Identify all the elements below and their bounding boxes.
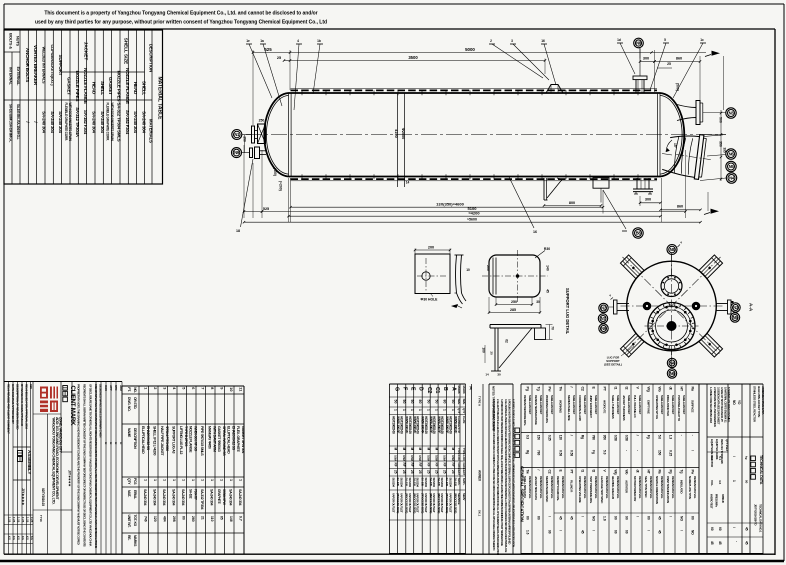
svg-text:C2: C2 xyxy=(426,387,432,393)
svg-text:ASSEMBLY DWG DATA: ASSEMBLY DWG DATA xyxy=(761,386,765,415)
svg-text:HALF PIPE JACKET: HALF PIPE JACKET xyxy=(160,426,164,456)
svg-text:USE OR IMPLOYING THE CONTENTS: USE OR IMPLOYING THE CONTENTS OF DISCLOS… xyxy=(94,384,98,548)
svg-text:1: 1 xyxy=(427,409,431,411)
svg-text:1:25: 1:25 xyxy=(30,517,34,523)
svg-text:ELLIPTICAL HEAD: ELLIPTICAL HEAD xyxy=(227,426,231,454)
svg-text:WN50-300 RF: WN50-300 RF xyxy=(396,416,400,433)
svg-text:50: 50 xyxy=(394,400,398,404)
svg-text:WORKING: WORKING xyxy=(558,400,562,414)
svg-text:KG: KG xyxy=(12,536,16,540)
svg-text:ZONE, YANGZHOU CITY: ZONE, YANGZHOU CITY xyxy=(59,417,63,454)
svg-text:SA-105: SA-105 xyxy=(445,478,449,487)
svg-text:t1: t1 xyxy=(613,387,617,390)
svg-text:SA-240 304: SA-240 304 xyxy=(172,489,176,505)
svg-text:m3: m3 xyxy=(710,456,714,461)
svg-text:120: 120 xyxy=(153,516,157,522)
svg-text:HG/T20615-09: HG/T20615-09 xyxy=(391,416,395,434)
svg-text:4. NDE: RT SPOT PER UW-52, PT: 4. NDE: RT SPOT PER UW-52, PT xyxy=(720,387,724,422)
svg-text:950: 950 xyxy=(602,435,606,440)
svg-text:2. PED/ASME SPEC AND DRAWINGS: 2. PED/ASME SPEC AND DRAWINGS xyxy=(713,387,717,427)
svg-text:FLANGE STD: FLANGE STD xyxy=(457,416,461,434)
svg-text:60: 60 xyxy=(536,516,540,520)
svg-text:SA-193 B8M L/SA-194 8M G-L: SA-193 B8M L/SA-194 8M G-L xyxy=(8,104,12,142)
svg-text:NOZZLE FLANGE: NOZZLE FLANGE xyxy=(125,68,130,104)
svg-text:VORTEX BREAKER: VORTEX BREAKER xyxy=(33,45,38,86)
svg-text:≈5600: ≈5600 xyxy=(467,218,477,222)
svg-text:HYDRO TEST: HYDRO TEST xyxy=(710,494,714,509)
svg-text:OR STD.: OR STD. xyxy=(133,397,137,409)
svg-text:30: 30 xyxy=(497,373,501,377)
svg-text:250: 250 xyxy=(259,118,265,122)
svg-text:150: 150 xyxy=(657,450,661,456)
svg-text:1a: 1a xyxy=(260,39,264,43)
svg-text:(PROCESS SIDE): (PROCESS SIDE) xyxy=(453,493,457,513)
svg-text:EMPTY WE: EMPTY WE xyxy=(646,400,650,414)
svg-text:1: 1 xyxy=(144,479,148,481)
svg-text:0.5M: 0.5M xyxy=(410,455,414,462)
svg-text:0.5M: 0.5M xyxy=(402,455,406,462)
svg-text:0.25: 0.25 xyxy=(668,450,672,456)
svg-text:SHELL/JACKET: SHELL/JACKET xyxy=(550,395,554,415)
svg-text:1:25: 1:25 xyxy=(21,517,25,523)
svg-text:INSULATIO: INSULATIO xyxy=(679,480,683,494)
svg-text:DESCRIPTION: DESCRIPTION xyxy=(149,44,154,72)
svg-text:1:25: 1:25 xyxy=(12,517,16,523)
svg-text:VAPOR OUTLET: VAPOR OUTLET xyxy=(408,493,412,513)
svg-text:VAPOR OUTLET: VAPOR OUTLET xyxy=(449,493,453,513)
svg-text:This document is a property of: This document is a property of Yangzhou … xyxy=(44,11,317,17)
svg-text:1. THIS EQUIPMENT IS DESIGNED: 1. THIS EQUIPMENT IS DESIGNED AND FABRIC… xyxy=(492,399,496,550)
svg-text:WITH SS304 INSERTS SPWN: WITH SS304 INSERTS SPWN xyxy=(110,103,114,142)
svg-text:TOT. KG: TOT. KG xyxy=(133,515,137,527)
svg-text:WITH DAVIT ARM: WITH DAVIT ARM xyxy=(213,426,217,452)
svg-text:VAPOR OUTLET: VAPOR OUTLET xyxy=(416,493,420,513)
svg-text:/: / xyxy=(646,530,650,531)
svg-text:CLIENT MARK: CLIENT MARK xyxy=(69,386,76,427)
svg-text:SA-105: SA-105 xyxy=(453,478,457,487)
svg-text:GASKET: GASKET xyxy=(108,77,113,95)
svg-text:395: 395 xyxy=(723,147,727,153)
svg-text:SHELL δ=12 L=4200: SHELL δ=12 L=4200 xyxy=(153,426,157,455)
svg-text:DESIGN DATA VAL: DESIGN DATA VAL xyxy=(693,476,697,499)
svg-text:(PROCESS SIDE): (PROCESS SIDE) xyxy=(420,493,424,513)
svg-text:3500: 3500 xyxy=(408,55,418,60)
svg-text:t2: t2 xyxy=(591,470,595,473)
svg-text:YD: YD xyxy=(737,400,741,405)
svg-text:DESIGN DATA VAL: DESIGN DATA VAL xyxy=(539,476,543,499)
svg-text:HG/T20615-09: HG/T20615-09 xyxy=(440,416,444,434)
svg-text:PAINT SPECIFICATION: PAINT SPECIFICATION xyxy=(666,476,670,503)
svg-text:SHELL/JACKET: SHELL/JACKET xyxy=(539,395,543,415)
svg-text:C1: C1 xyxy=(434,387,440,393)
svg-text:25: 25 xyxy=(427,470,431,474)
svg-text:/: / xyxy=(690,450,694,451)
svg-text:ELLIPTICAL HEAD: ELLIPTICAL HEAD xyxy=(141,426,145,454)
svg-text:EQUIP NAME REACTOR: EQUIP NAME REACTOR xyxy=(710,439,714,468)
svg-text:(PROCESS SIDE): (PROCESS SIDE) xyxy=(445,493,449,513)
svg-text:FULL VOLUME m3: FULL VOLUME m3 xyxy=(633,395,637,418)
svg-text:DESIGN PRESSURE MPa: DESIGN PRESSURE MPa xyxy=(523,395,527,426)
svg-text:TEST PRESSURE MPa: TEST PRESSURE MPa xyxy=(589,476,593,504)
svg-text:150: 150 xyxy=(536,435,540,440)
svg-text:SA-182 F304: SA-182 F304 xyxy=(125,110,130,135)
svg-text:VAPOR OUTLET: VAPOR OUTLET xyxy=(424,493,428,513)
svg-text:-: - xyxy=(735,541,739,542)
svg-text:NOZZLE PIPES: NOZZLE PIPES xyxy=(116,71,121,102)
svg-text:used by any third parties for: used by any third parties for any purpos… xyxy=(35,20,327,26)
svg-text:285: 285 xyxy=(510,308,516,312)
svg-text:YANGZHOU TONGYANG CHEMICAL EQU: YANGZHOU TONGYANG CHEMICAL EQUIPMENT CO.… xyxy=(52,417,56,504)
svg-text:/: / xyxy=(558,530,562,531)
svg-text:Pg: Pg xyxy=(668,470,672,474)
svg-text:1: 1 xyxy=(239,479,243,481)
svg-text:FLEX. GRAPHITE: FLEX. GRAPHITE xyxy=(236,426,240,452)
svg-text:45: 45 xyxy=(745,527,749,531)
svg-text:TYPE A: TYPE A xyxy=(478,396,482,406)
svg-text:QTY 1 SET: QTY 1 SET xyxy=(725,439,729,452)
svg-text:TYPE: TYPE xyxy=(462,448,466,455)
svg-text:(≈200): (≈200) xyxy=(279,181,283,191)
svg-text:Rg: Rg xyxy=(525,450,529,454)
svg-text:JACKET: JACKET xyxy=(83,42,88,61)
svg-text:1: 1 xyxy=(153,479,157,481)
svg-text:SA-105: SA-105 xyxy=(396,478,400,487)
svg-text:1: 1 xyxy=(732,480,736,482)
svg-text:300: 300 xyxy=(645,197,651,201)
svg-text:REV: REV xyxy=(29,384,33,389)
svg-text:J/Y∗∗∗∗: J/Y∗∗∗∗ xyxy=(68,470,72,487)
svg-text:SA-240 304: SA-240 304 xyxy=(41,111,46,133)
svg-text:110: 110 xyxy=(210,516,214,522)
svg-text:NO: NO xyxy=(679,516,683,521)
svg-text:SA-240 304: SA-240 304 xyxy=(181,489,185,505)
svg-text:JACKET THICKNESS: JACKET THICKNESS xyxy=(622,395,626,421)
svg-text:25: 25 xyxy=(435,470,439,474)
svg-text:860: 860 xyxy=(676,57,682,61)
svg-text:DESIGN DATA VAL: DESIGN DATA VAL xyxy=(594,476,598,499)
svg-text:1: 1 xyxy=(182,479,186,481)
svg-text:3. HYDROSTATIC TEST PRESSURE 0: 3. HYDROSTATIC TEST PRESSURE 0.58 MPA FO… xyxy=(500,399,504,546)
svg-text:62: 62 xyxy=(505,339,509,343)
svg-text:REV.5 ISSUED FOR APPROVAL 2016: REV.5 ISSUED FOR APPROVAL 2016 xyxy=(25,384,29,429)
svg-text:25: 25 xyxy=(277,56,281,60)
svg-text:ERIAL: ERIAL xyxy=(133,490,137,499)
svg-text:FLAN: FLAN xyxy=(462,416,466,423)
svg-text:60: 60 xyxy=(690,516,694,520)
svg-text:kg: kg xyxy=(745,456,749,460)
svg-text:ADD: 103 JINGANG ROAD, ECONOMI: ADD: 103 JINGANG ROAD, ECONOMIC DEVELOPM… xyxy=(55,417,59,500)
svg-text:G: G xyxy=(393,387,399,391)
svg-text:SA-240 304: SA-240 304 xyxy=(143,489,147,505)
svg-text:INSULATION THK: INSULATION THK xyxy=(666,395,670,417)
svg-text:NAME: NAME xyxy=(127,428,131,438)
svg-text:SA-240 304: SA-240 304 xyxy=(58,111,63,133)
svg-text:140: 140 xyxy=(546,265,550,271)
svg-text:MOTOR POWER KW: MOTOR POWER KW xyxy=(633,476,637,501)
svg-text:OPERATING VOLUME: OPERATING VOLUME xyxy=(578,476,582,503)
svg-text:PCS: PCS xyxy=(133,478,137,485)
svg-text:30: 30 xyxy=(536,300,540,304)
svg-text:B: B xyxy=(442,387,448,391)
svg-text:OF DISCLOSURE SAME TO OTHERS,: OF DISCLOSURE SAME TO OTHERS, ALL RIGHTS… xyxy=(88,384,92,547)
svg-text:1: 1 xyxy=(418,409,422,411)
svg-text:WN50-300 RF: WN50-300 RF xyxy=(445,416,449,433)
svg-text:(PROCESS SIDE): (PROCESS SIDE) xyxy=(396,493,400,513)
svg-text:500: 500 xyxy=(718,117,722,123)
svg-text:SIZE: SIZE xyxy=(457,399,461,405)
svg-text:0.5M: 0.5M xyxy=(427,455,431,462)
svg-text:5.1: 5.1 xyxy=(718,456,722,461)
svg-text:GRAPHITE: GRAPHITE xyxy=(217,489,221,504)
svg-text:60: 60 xyxy=(182,516,186,520)
svg-text:SA-312 TP304 SMLS: SA-312 TP304 SMLS xyxy=(116,102,121,141)
svg-text:SHELL/JACKET: SHELL/JACKET xyxy=(572,395,576,415)
svg-text:DESIGN DATA VAL: DESIGN DATA VAL xyxy=(605,476,609,499)
svg-text:SHELL: SHELL xyxy=(100,81,105,95)
svg-text:INTERNAL: INTERNAL xyxy=(8,67,12,85)
svg-text:9.7: 9.7 xyxy=(239,516,243,521)
svg-text:5: 5 xyxy=(664,38,666,42)
svg-text:R30: R30 xyxy=(544,247,550,251)
svg-text:RF: RF xyxy=(410,463,414,467)
svg-text:t1: t1 xyxy=(580,470,584,473)
svg-text:SUPPORT: SUPPORT xyxy=(58,55,63,76)
svg-text:Fg: Fg xyxy=(591,450,595,454)
svg-text:Tg: Tg xyxy=(679,470,683,474)
svg-text:7: 7 xyxy=(201,387,205,389)
svg-text:SHELL/JACKET: SHELL/JACKET xyxy=(616,395,620,415)
svg-text:4.6: 4.6 xyxy=(718,480,722,485)
svg-text:65: 65 xyxy=(220,516,224,520)
svg-text:SA-312 TP304: SA-312 TP304 xyxy=(200,489,204,509)
svg-text:5.0: 5.0 xyxy=(657,435,661,439)
svg-text:TYPE B 2PCS: TYPE B 2PCS xyxy=(184,426,188,447)
svg-text:25: 25 xyxy=(667,62,671,66)
svg-text:DESIGN DATA VAL: DESIGN DATA VAL xyxy=(583,476,587,499)
svg-text:KG: KG xyxy=(17,536,21,540)
svg-text:(M): (M) xyxy=(469,386,473,390)
svg-text:Pw: Pw xyxy=(690,470,694,475)
svg-text:WN50-300 RF: WN50-300 RF xyxy=(453,416,457,433)
svg-text:1.6: 1.6 xyxy=(525,530,529,535)
svg-text:Φ76X4 PITCH350: Φ76X4 PITCH350 xyxy=(165,426,169,451)
svg-text:SK.1: SK.1 xyxy=(478,510,482,517)
svg-text:0.58: 0.58 xyxy=(613,435,617,441)
svg-text:SURFACE: SURFACE xyxy=(690,400,694,413)
svg-text:5. MATERIAL CERTS EN10204 3.1: 5. MATERIAL CERTS EN10204 3.1 xyxy=(723,387,727,423)
svg-text:20: 20 xyxy=(490,351,494,355)
svg-text:1: 1 xyxy=(402,409,406,411)
svg-text:HEATING AREA M2: HEATING AREA M2 xyxy=(611,476,615,500)
svg-text:50: 50 xyxy=(410,400,414,404)
svg-text:SHELL/JACKET: SHELL/JACKET xyxy=(528,395,532,415)
svg-text:DESCRIPTION OF REVISION ISSUED: DESCRIPTION OF REVISION ISSUED xyxy=(16,384,20,430)
svg-text:TY16: TY16 xyxy=(39,515,43,522)
svg-text:1: 1 xyxy=(163,479,167,481)
svg-text:Tw: Tw xyxy=(558,387,562,392)
svg-text:90: 90 xyxy=(624,516,628,520)
svg-text:746: 746 xyxy=(144,516,148,522)
svg-text:3: 3 xyxy=(511,39,513,43)
svg-text:QTY: QTY xyxy=(462,408,466,414)
svg-text:Fg: Fg xyxy=(646,435,650,439)
svg-text:M: M xyxy=(442,448,446,451)
svg-text:14: 14 xyxy=(485,373,489,377)
svg-text:120: 120 xyxy=(558,435,562,440)
svg-text:NO: NO xyxy=(690,530,694,535)
svg-text:9: 9 xyxy=(220,387,224,389)
svg-text:50: 50 xyxy=(427,400,431,404)
svg-text:SA-193 B8 L/SA-194 8H G-L: SA-193 B8 L/SA-194 8H G-L xyxy=(16,104,20,140)
svg-text:MATERIAL TABLE: MATERIAL TABLE xyxy=(157,76,163,120)
svg-text:25: 25 xyxy=(402,470,406,474)
svg-text:/: / xyxy=(580,516,584,517)
svg-text:SERVICE: SERVICE xyxy=(457,493,461,505)
svg-text:50: 50 xyxy=(435,400,439,404)
svg-text:F: F xyxy=(402,387,408,390)
svg-text:780: 780 xyxy=(536,450,540,456)
svg-text:VAPOR OUTLET: VAPOR OUTLET xyxy=(432,493,436,513)
svg-text:WN50-300 RF: WN50-300 RF xyxy=(420,416,424,433)
svg-text:Tw: Tw xyxy=(525,470,529,475)
svg-text:45: 45 xyxy=(718,541,722,545)
svg-text:SIZE: SIZE xyxy=(462,399,466,405)
svg-text:4: 4 xyxy=(297,39,299,43)
svg-text:1e: 1e xyxy=(246,39,250,43)
svg-text:VOL: VOL xyxy=(710,480,714,486)
svg-text:FLEXIBLE GRAPHITE CORR.: FLEXIBLE GRAPHITE CORR. xyxy=(64,103,68,142)
svg-text:60: 60 xyxy=(624,530,628,534)
svg-text:-: - xyxy=(635,450,639,451)
svg-text:(SEE DETAIL): (SEE DETAIL) xyxy=(604,363,622,367)
svg-text:-: - xyxy=(624,450,628,451)
svg-text:45: 45 xyxy=(569,516,573,520)
svg-text:2. ALL BUTT WELDS SHALL BE FUL: 2. ALL BUTT WELDS SHALL BE FULL PENETRAT… xyxy=(496,399,500,555)
svg-text:SA-240 304: SA-240 304 xyxy=(133,111,138,133)
svg-text:5000: 5000 xyxy=(465,47,475,52)
svg-text:DESIGN DATA VAL: DESIGN DATA VAL xyxy=(660,476,664,499)
svg-text:6. NAMEPLATE FIXED ON SHELL: 6. NAMEPLATE FIXED ON SHELL xyxy=(727,387,731,423)
svg-text:NAMEPLATE TYPE: NAMEPLATE TYPE xyxy=(688,476,692,499)
svg-text:11: 11 xyxy=(239,387,243,391)
svg-text:PIPE Φ57X3.5 SMLS: PIPE Φ57X3.5 SMLS xyxy=(200,426,204,456)
svg-text:EXTERNAL: EXTERNAL xyxy=(16,67,20,87)
svg-text:LIFTING LUG PL.12: LIFTING LUG PL.12 xyxy=(179,426,183,454)
svg-text:FACE: FACE xyxy=(457,463,461,470)
svg-text:EXT: EXT xyxy=(457,470,461,476)
svg-text:60: 60 xyxy=(718,527,722,531)
svg-text:KG: KG xyxy=(8,536,12,540)
svg-text:SA-182: SA-182 xyxy=(189,489,193,499)
svg-text:NOZZLE FLANGE: NOZZLE FLANGE xyxy=(83,68,88,104)
svg-text:25: 25 xyxy=(442,470,446,474)
svg-text:NO: NO xyxy=(732,400,736,405)
svg-text:RF: RF xyxy=(451,463,455,467)
svg-text:HEAD: HEAD xyxy=(91,82,96,95)
svg-text:Φ2000: Φ2000 xyxy=(401,128,405,140)
svg-text:FACE: FACE xyxy=(462,463,466,470)
svg-text:MEDIUM NAME SPEC: MEDIUM NAME SPEC xyxy=(545,476,549,503)
svg-text:OPERATING WT KG: OPERATING WT KG xyxy=(655,395,659,420)
svg-text:PROPRIETARY NOTE: THIS DRAWING: PROPRIETARY NOTE: THIS DRAWING AND THE D… xyxy=(77,384,81,545)
svg-text:SHELL THICKNESS: SHELL THICKNESS xyxy=(611,395,615,419)
svg-text:FILLING R: FILLING R xyxy=(569,480,573,493)
svg-text:HYDRO TE: HYDRO TE xyxy=(602,400,606,413)
svg-text:UNIT WT.: UNIT WT. xyxy=(127,515,131,529)
svg-text:NOZZLE ORIENTATION: NOZZLE ORIENTATION xyxy=(655,476,659,504)
svg-text:SHELL SIDE DATA: SHELL SIDE DATA xyxy=(523,476,527,499)
svg-text:ANCHOR BOLTS: ANCHOR BOLTS xyxy=(25,48,30,82)
svg-text:2: 2 xyxy=(153,387,157,389)
svg-text:0.58: 0.58 xyxy=(558,450,562,456)
svg-text:M: M xyxy=(394,448,398,451)
svg-text:HEAD: HEAD xyxy=(133,82,138,95)
svg-text:DESIGN DATA VAL: DESIGN DATA VAL xyxy=(638,476,642,499)
svg-text:1:25: 1:25 xyxy=(17,517,21,523)
svg-text:2: 2 xyxy=(490,39,492,43)
svg-text:1. ASME CODE SEC.VIII DIV.1 20: 1. ASME CODE SEC.VIII DIV.1 2013 xyxy=(709,387,713,423)
svg-text:HG/T20615-09: HG/T20615-09 xyxy=(400,416,404,434)
svg-text:VAPOR OUTLET: VAPOR OUTLET xyxy=(391,493,395,513)
svg-text:APP: APP xyxy=(109,385,113,391)
svg-text:C2: C2 xyxy=(547,470,551,474)
svg-text:1:25: 1:25 xyxy=(8,517,12,523)
svg-text:F304 RF: F304 RF xyxy=(194,489,198,500)
svg-text:EXT: EXT xyxy=(462,470,466,476)
svg-text:8: 8 xyxy=(210,387,214,389)
svg-text:HALF-PIPE JACKET TYPE: HALF-PIPE JACKET TYPE xyxy=(757,386,761,417)
svg-text:/: / xyxy=(668,516,672,517)
svg-text:1: 1 xyxy=(435,409,439,411)
svg-text:6. VESSEL TO BE CLEANED AND DR: 6. VESSEL TO BE CLEANED AND DRIED BEFORE… xyxy=(512,399,516,547)
svg-text:NOZZLE FLANGE: NOZZLE FLANGE xyxy=(189,426,193,453)
svg-text:AGITATOR: AGITATOR xyxy=(624,480,628,494)
svg-text:Ra: Ra xyxy=(657,470,661,474)
svg-text:SUPPORT LUG DETAIL: SUPPORT LUG DETAIL xyxy=(565,288,570,335)
svg-text:60: 60 xyxy=(525,516,529,520)
svg-text:15°: 15° xyxy=(673,143,677,149)
svg-text:HG/T20615-09: HG/T20615-09 xyxy=(416,416,420,434)
svg-text:200: 200 xyxy=(428,245,434,249)
svg-text:A-A: A-A xyxy=(749,303,754,312)
svg-text:0.58: 0.58 xyxy=(624,435,628,441)
svg-text:0.3: 0.3 xyxy=(525,435,529,439)
svg-text:1.3: 1.3 xyxy=(668,435,672,439)
svg-text:t2: t2 xyxy=(624,387,628,390)
svg-text:45: 45 xyxy=(657,530,661,534)
svg-text:Φ30 HOLE: Φ30 HOLE xyxy=(421,298,439,302)
svg-text:EHA2000X12 SS: EHA2000X12 SS xyxy=(232,426,236,451)
svg-text:SUS304: SUS304 xyxy=(391,478,395,488)
svg-text:SA-240 304: SA-240 304 xyxy=(50,111,55,133)
svg-text:MARKS: MARKS xyxy=(133,535,137,547)
svg-text:60: 60 xyxy=(710,527,714,531)
svg-text:GASKET: GASKET xyxy=(66,77,71,95)
svg-text:ASSEMBLY: ASSEMBLY xyxy=(27,450,32,474)
svg-text:SUS304: SUS304 xyxy=(440,478,444,488)
svg-text:CLIPS/BRACKETS(EXT.): CLIPS/BRACKETS(EXT.) xyxy=(50,45,54,87)
svg-text:Wo: Wo xyxy=(624,470,628,475)
svg-text:NO: NO xyxy=(591,516,595,521)
svg-text:25: 25 xyxy=(418,470,422,474)
svg-text:JS/TY2016-028-TD: JS/TY2016-028-TD xyxy=(754,504,758,526)
svg-text:45: 45 xyxy=(546,289,550,293)
svg-text:DESIGN DATA VAL: DESIGN DATA VAL xyxy=(616,476,620,499)
svg-text:DESIGN DATA VAL: DESIGN DATA VAL xyxy=(528,476,532,499)
svg-text:300: 300 xyxy=(643,57,649,61)
svg-text:25: 25 xyxy=(410,470,414,474)
svg-text:SUS304: SUS304 xyxy=(400,478,404,488)
